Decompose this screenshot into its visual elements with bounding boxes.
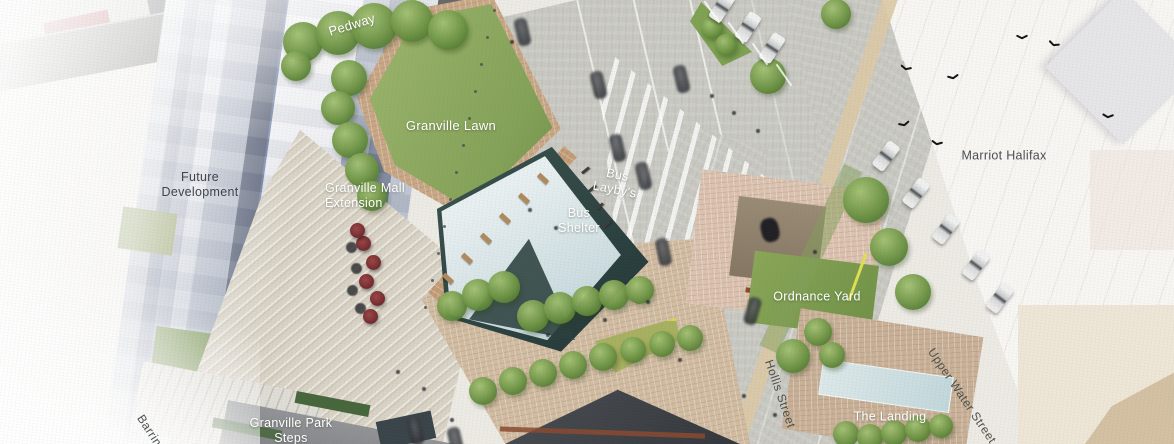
bollard	[449, 198, 452, 201]
tree	[544, 292, 576, 324]
person-dot	[678, 358, 682, 363]
cafe-table	[351, 263, 362, 274]
label-future-development: Future Development	[162, 170, 239, 201]
bollard	[462, 144, 465, 147]
moving-car	[446, 426, 465, 444]
site-plan-rendering: Pedway Future Development Granville Lawn…	[0, 0, 1174, 444]
person-dot	[742, 394, 746, 399]
person-dot	[510, 40, 514, 45]
bollard	[443, 225, 446, 228]
label-granville-lawn: Granville Lawn	[406, 118, 496, 134]
person-dot	[773, 413, 777, 418]
person-dot	[732, 111, 736, 116]
tree	[589, 343, 617, 371]
bird	[1102, 111, 1115, 120]
tree	[715, 34, 737, 56]
person-dot	[813, 250, 817, 255]
label-marriot-halifax: Marriot Halifax	[961, 148, 1046, 163]
tree	[281, 51, 311, 81]
parked-car	[961, 249, 990, 281]
person-dot	[546, 333, 550, 338]
tree	[488, 271, 520, 303]
bird	[946, 72, 959, 82]
tree	[559, 351, 587, 379]
plaza-paving-beige	[1018, 305, 1174, 444]
cafe-umbrella	[350, 223, 365, 238]
bird	[1047, 38, 1061, 50]
tree	[895, 274, 931, 310]
rooftop-glass-small	[376, 410, 437, 444]
bird	[930, 138, 943, 148]
label-ordnance-yard: Ordnance Yard	[773, 289, 861, 304]
cafe-umbrella	[366, 255, 381, 270]
tree	[499, 367, 527, 395]
person-dot	[528, 208, 532, 213]
tree	[626, 276, 654, 304]
label-granville-park-steps: Granville Park Steps	[250, 416, 333, 444]
cafe-umbrella	[370, 291, 385, 306]
tree	[870, 228, 908, 266]
tree	[649, 331, 675, 357]
tree	[821, 0, 851, 29]
label-bus-shelter: Bus Shelter	[558, 206, 600, 237]
cafe-umbrella	[356, 236, 371, 251]
person-dot	[646, 300, 650, 305]
tree	[428, 10, 468, 50]
bollard	[424, 306, 427, 309]
tree	[929, 414, 953, 438]
bollard	[486, 36, 489, 39]
person-dot	[422, 387, 426, 392]
person-dot	[450, 418, 454, 423]
bird	[1016, 33, 1028, 41]
bollard	[431, 279, 434, 282]
person-dot	[710, 94, 714, 99]
bollard	[480, 63, 483, 66]
tree	[572, 286, 602, 316]
bollard	[455, 171, 458, 174]
cafe-table	[355, 303, 366, 314]
label-granville-mall-extension: Granville Mall Extension	[325, 181, 405, 212]
tree	[599, 280, 629, 310]
tree	[843, 177, 889, 223]
tree	[391, 0, 433, 42]
cafe-table	[346, 242, 357, 253]
parked-car	[931, 213, 960, 245]
person-dot	[603, 318, 607, 323]
cafe-umbrella	[359, 274, 374, 289]
tree	[857, 424, 883, 444]
label-the-landing: The Landing	[854, 409, 927, 424]
plaza-block-pink	[1090, 150, 1174, 250]
tree	[321, 91, 355, 125]
cafe-table	[347, 285, 358, 296]
building-footprint-diamond	[1045, 0, 1174, 145]
tree	[529, 359, 557, 387]
tree	[677, 325, 703, 351]
tree	[469, 377, 497, 405]
person-dot	[396, 370, 400, 375]
person-dot	[756, 129, 760, 134]
tree	[819, 342, 845, 368]
tree	[620, 337, 646, 363]
tree	[776, 339, 810, 373]
bollard	[437, 252, 440, 255]
courtyard-green-upper	[117, 206, 177, 255]
bollard	[474, 90, 477, 93]
bollard	[493, 9, 496, 12]
parked-car	[985, 282, 1014, 314]
